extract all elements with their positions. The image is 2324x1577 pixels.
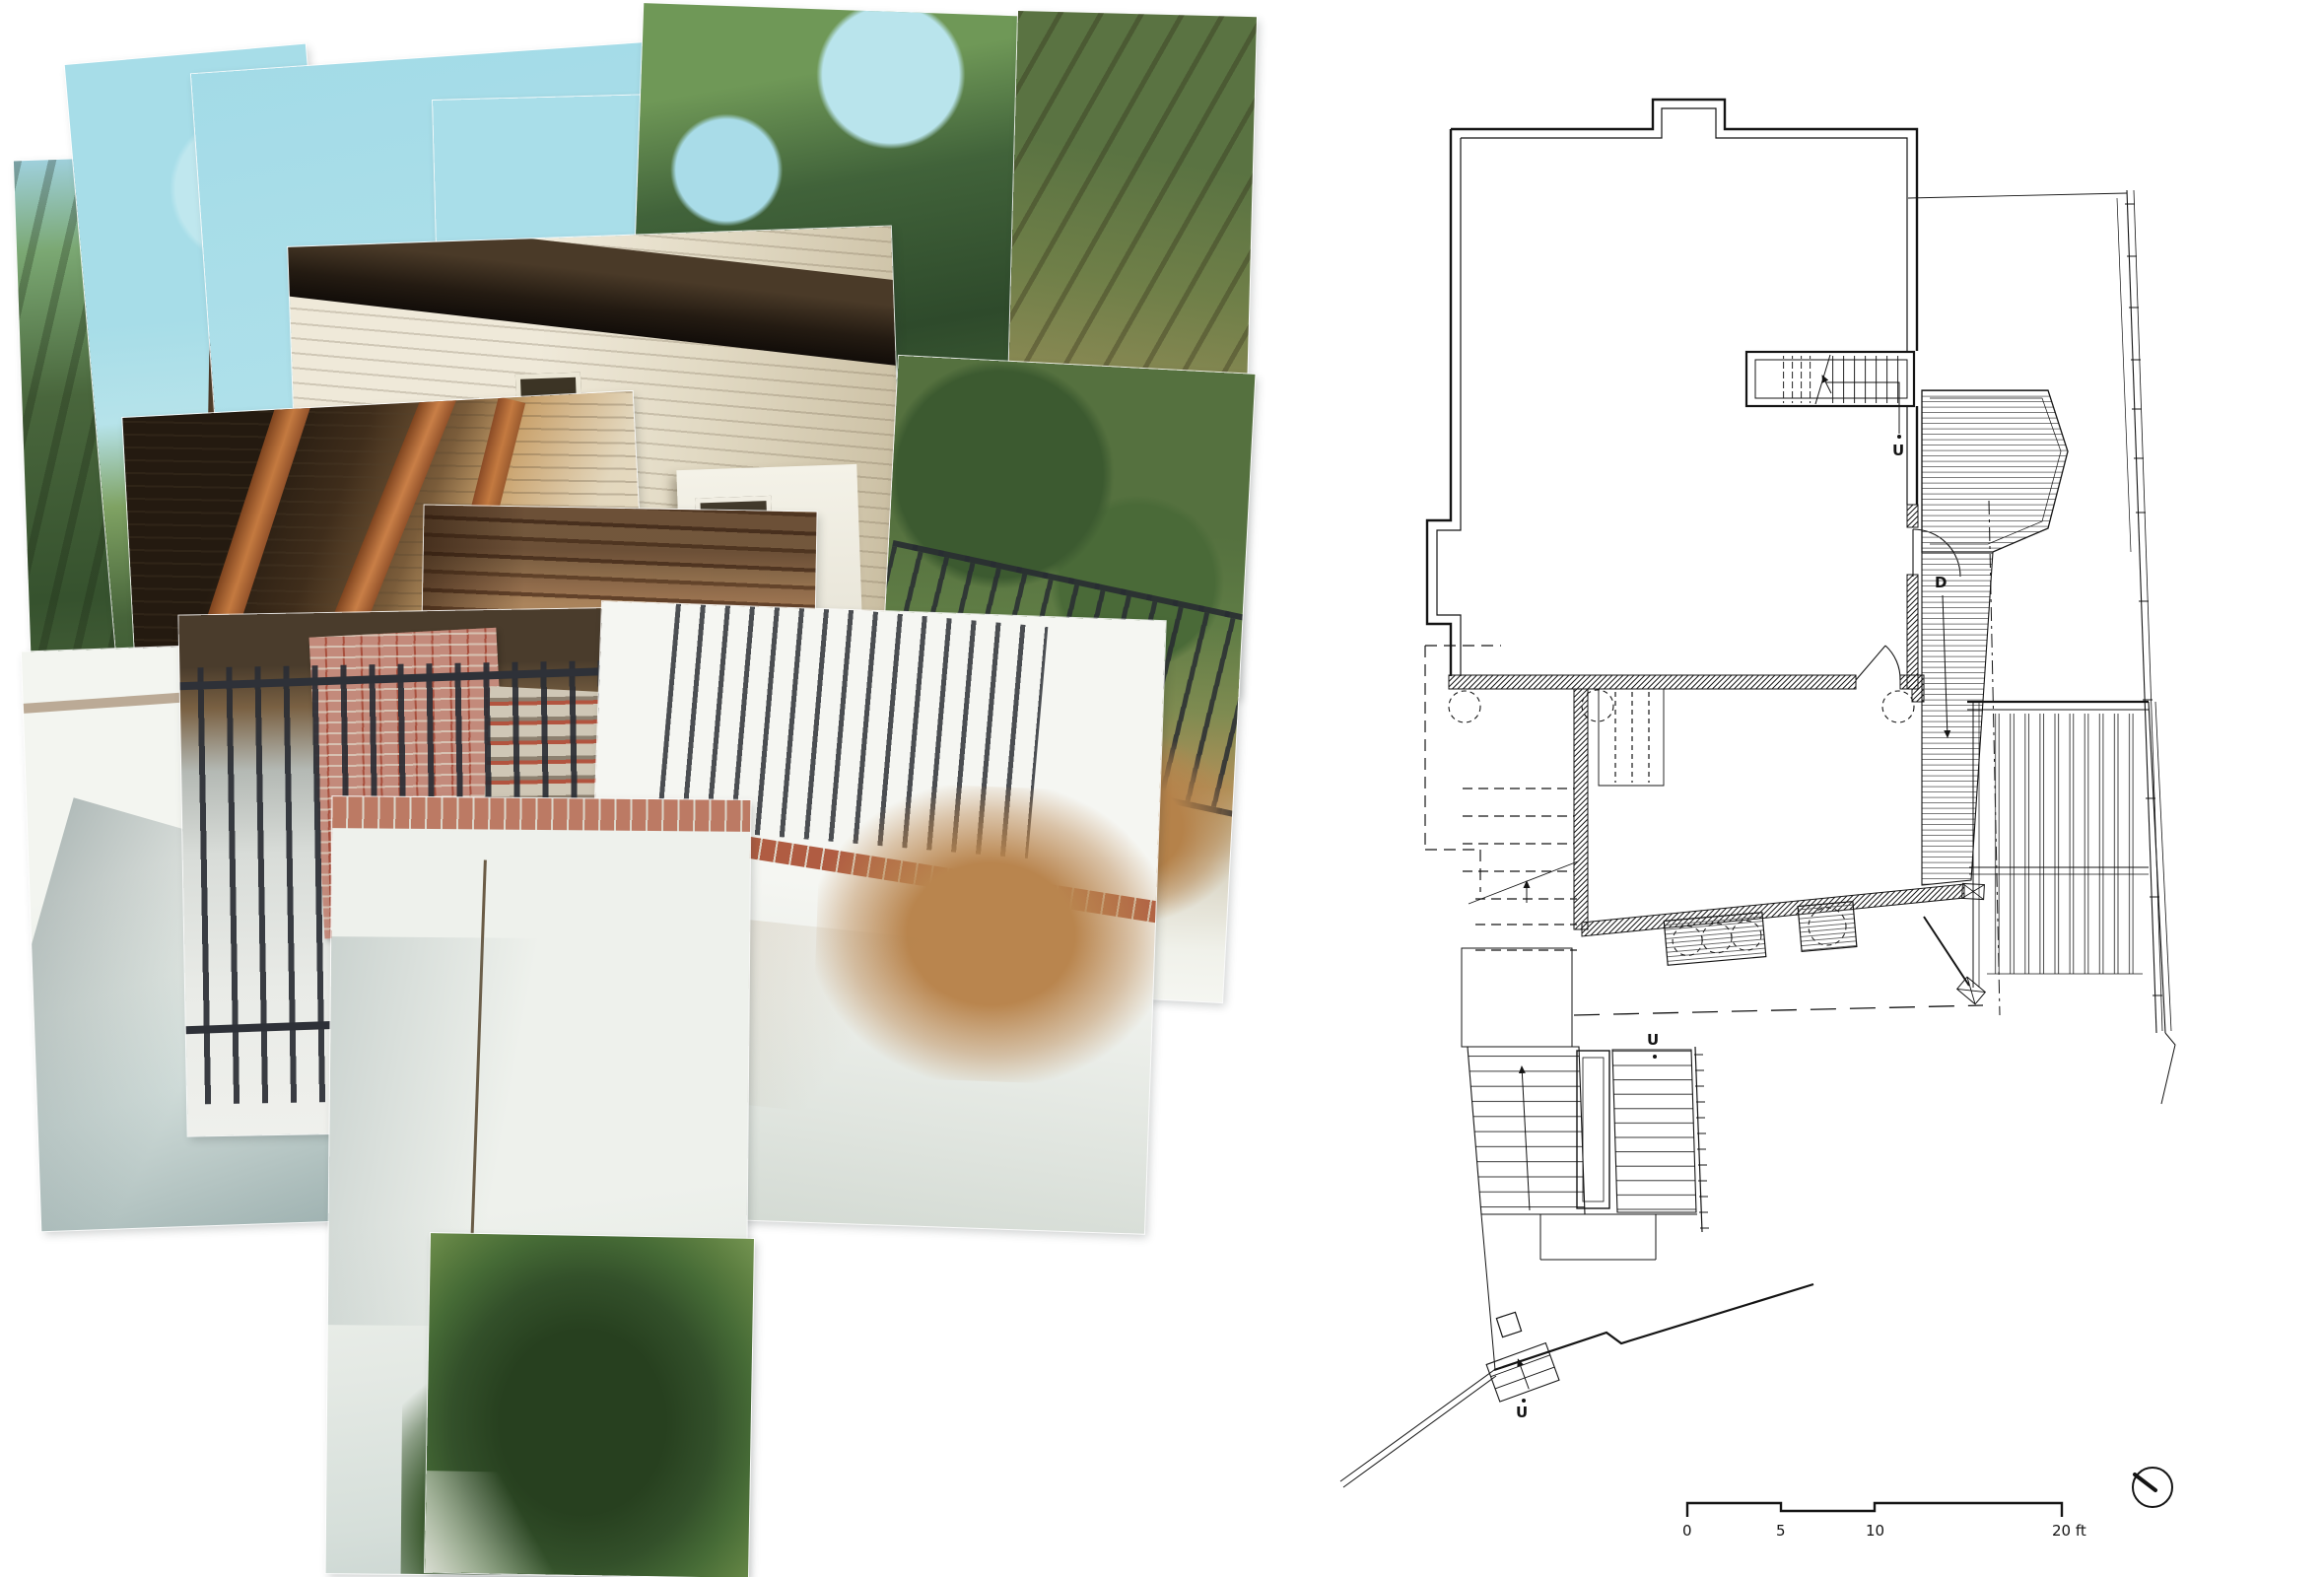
scale-bar: 0 5 10 20 ft [1682,1503,2086,1540]
dashed-property-line [1574,1005,1983,1015]
scale-tick-5: 5 [1776,1522,1786,1540]
column-circles [1449,690,1914,722]
post-x [1957,977,1986,1004]
deck-down-label: D [1935,574,1947,591]
deck-brace [1924,917,1969,986]
stair-above-dashed [1599,689,1664,786]
stair-up-label: U [1892,442,1904,459]
retaining-walls [1340,1284,1813,1487]
door-to-room [1856,646,1900,680]
scale-tick-0: 0 [1682,1522,1692,1540]
scale-tick-10: 10 [1866,1522,1884,1540]
scale-tick-20: 20 ft [2052,1522,2086,1540]
north-arrow-icon [2133,1468,2172,1507]
exterior-stair-up-label: U [1647,1031,1659,1049]
interior-stair [1746,352,1914,439]
exterior-stairs [1462,948,1709,1370]
page: U D [0,0,2324,1577]
lower-stair-up-label: U [1516,1404,1528,1421]
floor-plan: U D [0,0,2324,1577]
